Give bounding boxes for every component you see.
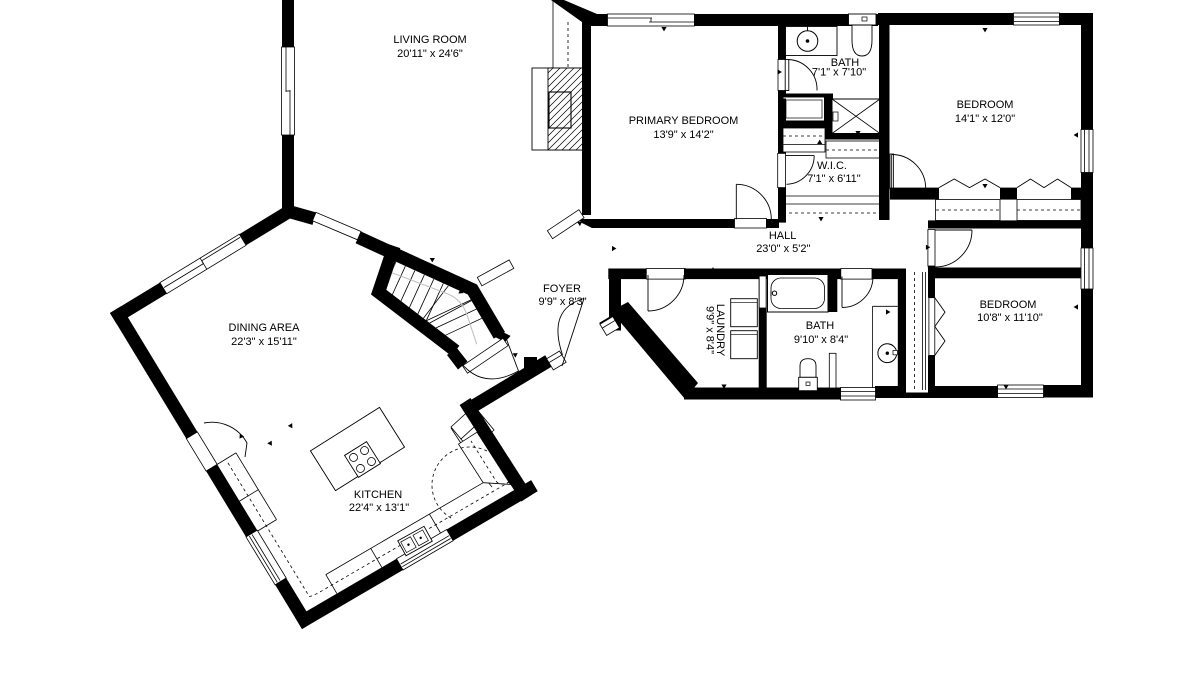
svg-text:BEDROOM: BEDROOM [980, 299, 1037, 311]
svg-text:23'0" x 5'2": 23'0" x 5'2" [756, 243, 810, 255]
svg-text:LIVING ROOM: LIVING ROOM [393, 34, 466, 46]
svg-text:9'9" x 8'4": 9'9" x 8'4" [704, 306, 716, 354]
svg-text:10'8" x 11'10": 10'8" x 11'10" [977, 312, 1043, 324]
svg-text:22'3" x 15'11": 22'3" x 15'11" [231, 336, 297, 348]
svg-text:HALL: HALL [769, 230, 797, 242]
svg-text:13'9" x 14'2": 13'9" x 14'2" [653, 129, 713, 141]
svg-text:DINING AREA: DINING AREA [229, 322, 301, 334]
svg-text:7'1" x 6'11": 7'1" x 6'11" [807, 173, 860, 185]
svg-text:9'9" x 8'3": 9'9" x 8'3" [539, 296, 587, 308]
svg-text:9'10" x 8'4": 9'10" x 8'4" [794, 334, 848, 346]
svg-text:FOYER: FOYER [543, 283, 581, 295]
svg-text:7'1" x 7'10": 7'1" x 7'10" [812, 67, 866, 79]
svg-text:20'11" x 24'6": 20'11" x 24'6" [397, 48, 463, 60]
svg-text:PRIMARY BEDROOM: PRIMARY BEDROOM [629, 115, 739, 127]
svg-text:KITCHEN: KITCHEN [354, 489, 402, 501]
svg-text:22'4" x 13'1": 22'4" x 13'1" [349, 502, 409, 514]
svg-text:W.I.C.: W.I.C. [817, 160, 847, 172]
svg-text:BATH: BATH [806, 320, 835, 332]
svg-text:14'1" x 12'0": 14'1" x 12'0" [955, 113, 1015, 125]
svg-text:BEDROOM: BEDROOM [957, 99, 1014, 111]
